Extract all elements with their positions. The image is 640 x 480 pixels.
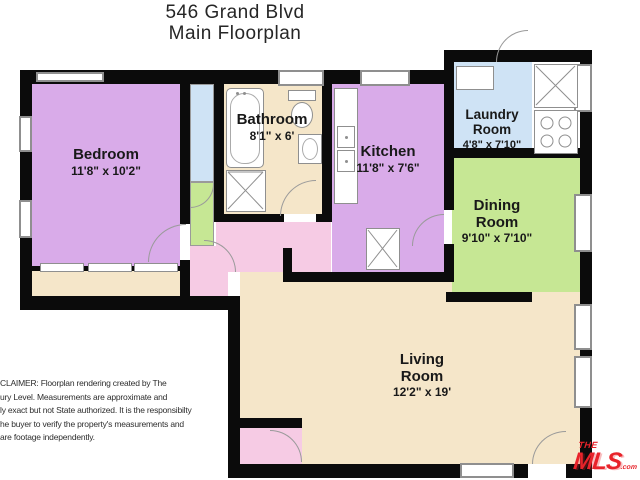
laundry-label: Laundry Room 4'8" x 7'10": [450, 108, 534, 151]
disclaimer-text: CLAIMER: Floorplan rendering created by …: [0, 377, 222, 445]
window: [360, 70, 410, 86]
linen-closet: [190, 84, 214, 182]
dining-label: Dining Room 9'10" x 7'10": [452, 198, 542, 245]
disclaimer-line: ly exact but not State authorized. It is…: [0, 404, 222, 418]
wall-segment: [20, 296, 240, 310]
dining-dims: 9'10" x 7'10": [452, 232, 542, 245]
wall-segment: [514, 464, 528, 478]
wall-segment: [20, 70, 32, 310]
wall-segment: [284, 272, 450, 282]
window: [278, 70, 324, 86]
closet-sliding-door-icon: [134, 263, 178, 272]
living-name: Living Room: [377, 352, 467, 385]
wall-segment: [446, 292, 532, 302]
toilet-icon: [288, 90, 316, 101]
bathroom-label: Bathroom 8'1" x 6': [222, 112, 322, 143]
disclaimer-line: ury Level. Measurements are approximate …: [0, 391, 222, 405]
dining-name: Dining Room: [452, 198, 542, 231]
living-label: Living Room 12'2" x 19': [377, 352, 467, 399]
bedroom-name: Bedroom: [32, 147, 180, 164]
wall-segment: [180, 84, 190, 224]
plan-title-address: 546 Grand Blvd: [90, 2, 380, 23]
closet-sliding-door-icon: [40, 263, 84, 272]
wall-segment: [322, 84, 332, 214]
laundry-name: Laundry Room: [450, 108, 534, 138]
themls-logo: THE MLS.com: [572, 441, 639, 474]
window: [19, 200, 32, 238]
laundry-counter-icon: [456, 66, 494, 90]
closet-sliding-door-icon: [88, 263, 132, 272]
living-dims: 12'2" x 19': [377, 386, 467, 399]
disclaimer-line: CLAIMER: Floorplan rendering created by …: [0, 377, 222, 391]
water-heater-icon: [534, 64, 578, 108]
window: [19, 116, 32, 152]
wall-segment: [316, 214, 332, 222]
wall-segment: [228, 464, 460, 478]
window: [574, 304, 592, 350]
plan-title-subtitle: Main Floorplan: [90, 23, 380, 44]
wall-segment: [214, 214, 284, 222]
wall-segment: [228, 296, 240, 478]
wall-segment: [228, 418, 302, 428]
bedroom-label: Bedroom 11'8" x 10'2": [32, 147, 180, 178]
refrigerator-icon: [366, 228, 400, 270]
plan-title: 546 Grand Blvd Main Floorplan: [90, 2, 380, 44]
wall-segment: [283, 248, 292, 282]
wall-segment: [180, 260, 190, 300]
bedroom-closet: [32, 271, 180, 296]
kitchen-dims: 11'8" x 7'6": [338, 162, 438, 175]
wall-segment: [214, 84, 224, 214]
kitchen-name: Kitchen: [338, 144, 438, 161]
wall-segment: [580, 50, 592, 478]
themls-logo-mls: MLS: [572, 448, 623, 475]
laundry-dims: 4'8" x 7'10": [450, 139, 534, 151]
bathroom-name: Bathroom: [222, 112, 322, 129]
disclaimer-line: he buyer to verify the property's measur…: [0, 418, 222, 432]
door-arc-laundry-entry: [496, 30, 528, 62]
window: [36, 72, 104, 82]
bathroom-dims: 8'1" x 6': [222, 130, 322, 143]
shower-icon: [226, 170, 266, 212]
window: [460, 463, 514, 478]
bedroom-dims: 11'8" x 10'2": [32, 165, 180, 178]
window: [574, 194, 592, 252]
window: [574, 356, 592, 408]
disclaimer-line: are footage independently.: [0, 431, 222, 445]
themls-logo-com: .com: [620, 464, 637, 471]
floorplan-page: 546 Grand Blvd Main Floorplan: [0, 0, 640, 480]
kitchen-label: Kitchen 11'8" x 7'6": [338, 144, 438, 175]
stove-icon: [534, 110, 578, 154]
